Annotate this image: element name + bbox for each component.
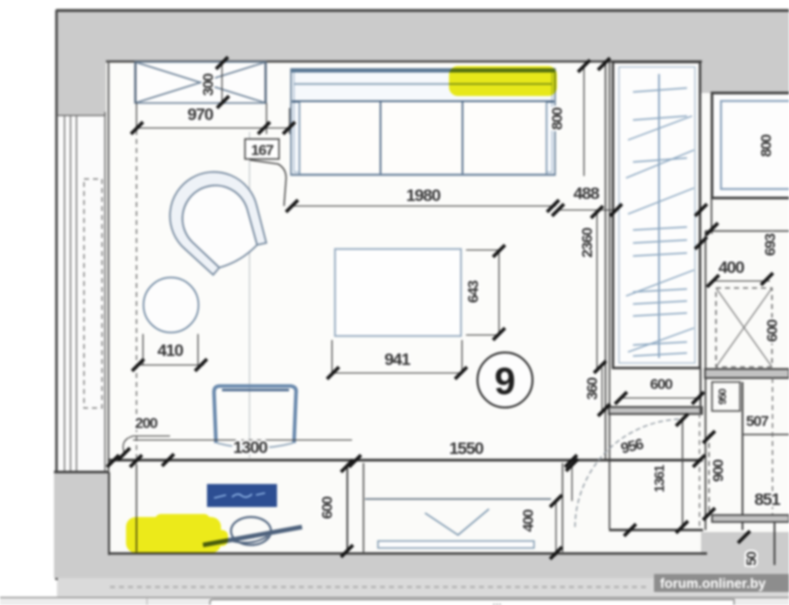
svg-text:410: 410 bbox=[157, 341, 183, 360]
svg-text:300: 300 bbox=[200, 73, 217, 96]
svg-text:507: 507 bbox=[746, 413, 769, 430]
svg-text:970: 970 bbox=[187, 105, 213, 124]
svg-text:851: 851 bbox=[754, 490, 780, 509]
svg-text:167: 167 bbox=[251, 142, 274, 159]
svg-text:1980: 1980 bbox=[406, 186, 440, 205]
svg-text:1550: 1550 bbox=[449, 439, 483, 458]
svg-text:200: 200 bbox=[135, 415, 158, 432]
svg-text:800: 800 bbox=[549, 107, 566, 130]
svg-text:800: 800 bbox=[758, 134, 775, 157]
svg-text:488: 488 bbox=[573, 184, 599, 203]
svg-text:941: 941 bbox=[384, 350, 410, 369]
svg-text:900: 900 bbox=[710, 459, 727, 482]
svg-text:1300: 1300 bbox=[233, 438, 267, 457]
svg-text:643: 643 bbox=[465, 280, 482, 303]
svg-text:360: 360 bbox=[584, 377, 601, 400]
svg-text:600: 600 bbox=[650, 376, 673, 393]
svg-text:1361: 1361 bbox=[651, 464, 667, 492]
svg-text:9: 9 bbox=[494, 361, 515, 403]
svg-text:950: 950 bbox=[717, 388, 729, 404]
svg-text:400: 400 bbox=[520, 509, 537, 532]
svg-text:693: 693 bbox=[762, 233, 779, 256]
svg-text:600: 600 bbox=[319, 496, 336, 519]
svg-text:forum.onliner.by: forum.onliner.by bbox=[660, 576, 766, 591]
svg-text:400: 400 bbox=[718, 258, 744, 277]
svg-text:50: 50 bbox=[743, 551, 759, 566]
svg-text:...: ... bbox=[492, 596, 501, 605]
svg-text:2360: 2360 bbox=[579, 228, 596, 258]
svg-text:600: 600 bbox=[764, 319, 781, 342]
